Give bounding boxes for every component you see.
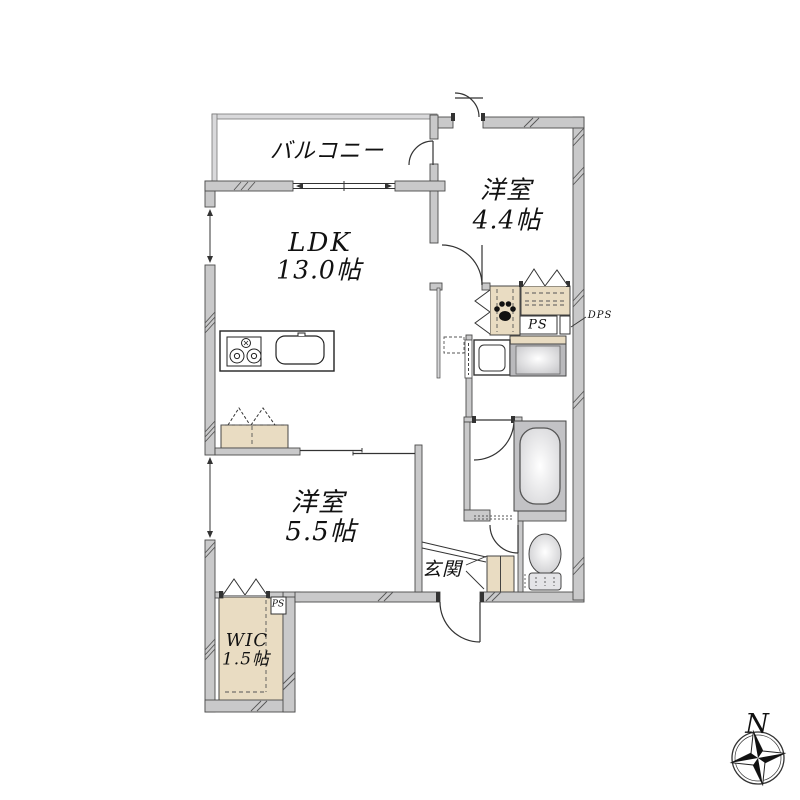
label-bedroom2-size: 5.5帖 <box>285 519 356 545</box>
label-balcony: バルコニー <box>270 141 385 163</box>
sink-icon <box>276 333 324 364</box>
entrance-leader-line <box>466 556 487 565</box>
label-bedroom1: 洋室 <box>480 178 532 203</box>
label-dps: DPS <box>588 311 613 321</box>
bathtub-icon <box>514 421 566 511</box>
refrigerator-space <box>444 337 464 353</box>
label-bedroom1-size: 4.4帖 <box>473 208 542 233</box>
shelf-strip <box>510 336 566 344</box>
label-ldk-size: 13.0帖 <box>276 258 362 283</box>
kitchen-counter <box>220 331 334 371</box>
compass-north-label: N <box>744 709 770 740</box>
ldk-closet <box>221 425 288 448</box>
pet-storage <box>490 286 520 335</box>
label-wic: WIC <box>226 632 268 650</box>
washbasin-icon <box>474 340 510 375</box>
entrance-leader-line <box>466 571 484 589</box>
label-bedroom2: 洋室 <box>291 490 345 516</box>
label-ldk: LDK <box>288 230 352 256</box>
dps-box <box>560 316 570 334</box>
washing-machine-icon <box>510 344 566 376</box>
compass-icon: N <box>727 709 790 789</box>
label-entrance: 玄関 <box>422 561 462 580</box>
floor-plan: N バルコニー LDK 13.0帖 洋室 4.4帖 洋室 5.5帖 WIC 1.… <box>0 0 800 800</box>
label-wic-ps: PS <box>272 601 284 610</box>
hall-closet <box>521 286 570 315</box>
label-wic-size: 1.5帖 <box>222 652 270 669</box>
stove-icon <box>227 337 261 366</box>
floor-plan-drawing: N <box>0 0 800 800</box>
toilet-icon <box>525 534 561 590</box>
label-ps: PS <box>528 319 548 332</box>
